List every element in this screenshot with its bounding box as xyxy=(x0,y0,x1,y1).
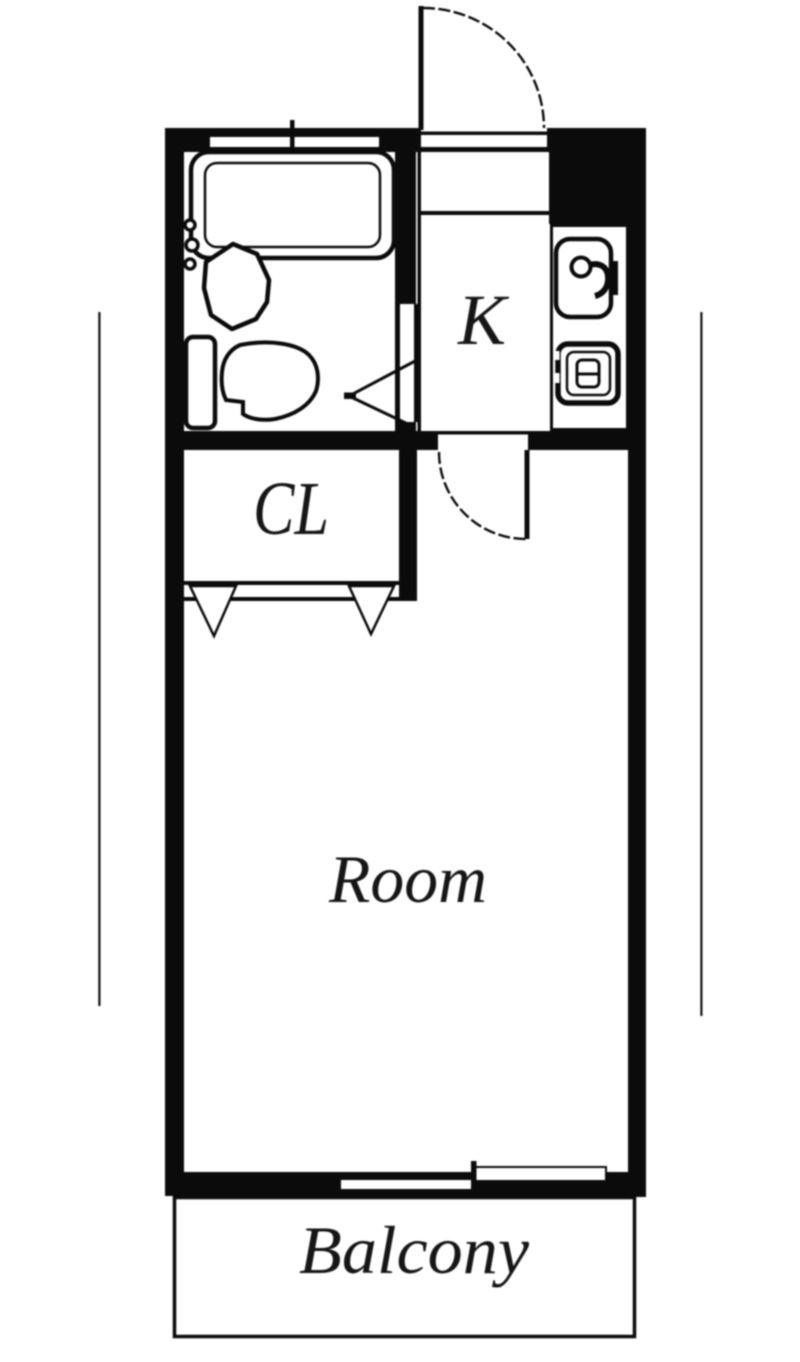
svg-text:Balcony: Balcony xyxy=(299,1212,530,1288)
svg-text:Room: Room xyxy=(328,841,487,917)
svg-text:K: K xyxy=(457,280,510,360)
svg-text:CL: CL xyxy=(253,467,329,551)
